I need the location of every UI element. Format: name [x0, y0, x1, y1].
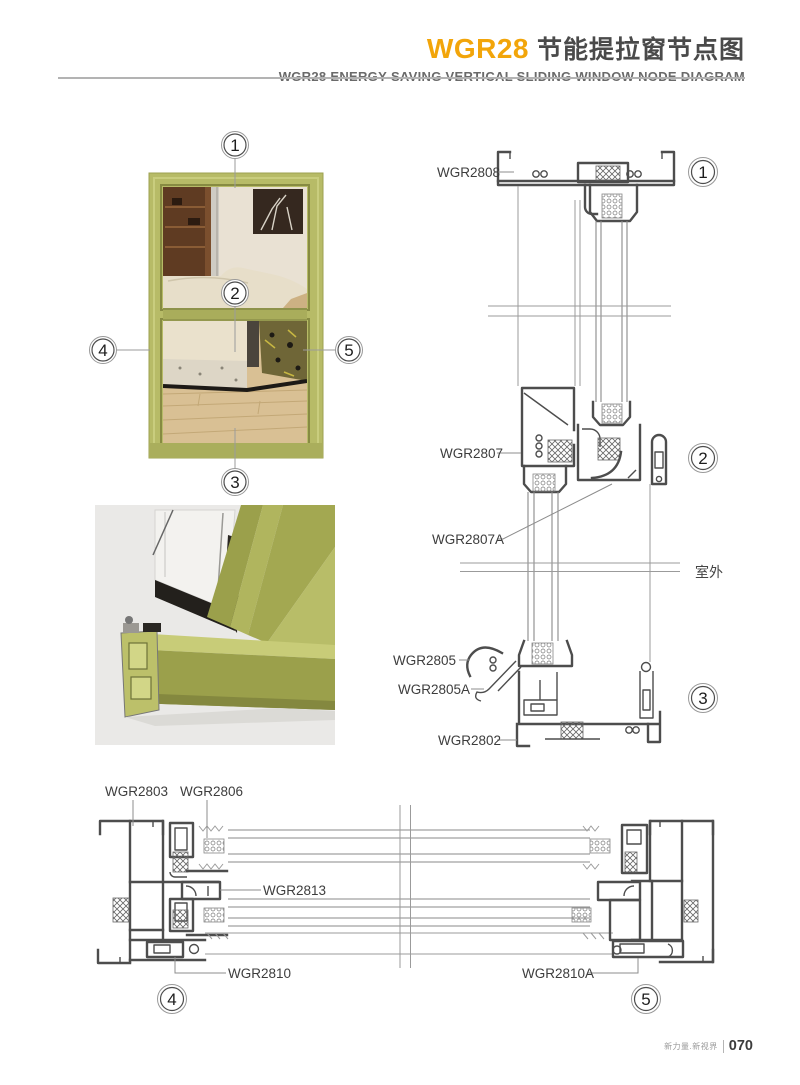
title-chinese: 节能提拉窗节点图	[537, 36, 745, 64]
sill-detail	[467, 641, 660, 746]
label-wgr2805: WGR2805	[393, 653, 456, 668]
label-wgr2810: WGR2810	[228, 966, 291, 981]
callout-1: 1	[222, 132, 249, 159]
callout-3-number: 3	[230, 473, 239, 492]
catalog-page: WGR28节能提拉窗节点图 WGR28 ENERGY-SAVING VERTIC…	[0, 0, 800, 1085]
footer-slogan: 新力量.新视界	[664, 1041, 718, 1052]
head-detail	[498, 152, 674, 221]
header-rule	[58, 77, 745, 79]
callout-1-number: 1	[230, 136, 239, 155]
page-title: WGR28节能提拉窗节点图	[0, 30, 745, 66]
label-wgr2802: WGR2802	[438, 733, 501, 748]
detail-circle-1: 1	[689, 158, 718, 187]
label-wgr2810a: WGR2810A	[522, 966, 594, 981]
label-wgr2807: WGR2807	[440, 446, 503, 461]
detail-1-number: 1	[698, 163, 707, 182]
callout-4: 4	[90, 337, 117, 364]
callout-4-number: 4	[98, 341, 107, 360]
label-wgr2808: WGR2808	[437, 165, 500, 180]
detail-circle-3: 3	[689, 684, 718, 713]
callout-2-number: 2	[230, 284, 239, 303]
page-number: 070	[729, 1038, 753, 1054]
detail-4-number: 4	[167, 990, 176, 1009]
title-brand: WGR28	[427, 33, 529, 64]
corner-profile-photo	[95, 505, 335, 745]
callout-5: 5	[336, 337, 363, 364]
horizontal-section-drawing: WGR2803 WGR2806 WGR2813 WGR2810 WGR2810A…	[60, 770, 770, 1030]
outdoor-label: 室外	[695, 564, 723, 580]
right-jamb-detail	[598, 821, 713, 962]
label-wgr2803: WGR2803	[105, 784, 168, 799]
detail-3-number: 3	[698, 689, 707, 708]
detail-2-number: 2	[698, 449, 707, 468]
label-wgr2805a: WGR2805A	[398, 682, 470, 697]
footer-divider	[723, 1040, 724, 1053]
label-wgr2806: WGR2806	[180, 784, 243, 799]
window-photo-figure: 1 2 3 4 5	[80, 128, 370, 504]
vertical-section-drawing: 室外 WGR2808 WGR2807	[380, 120, 800, 780]
upper-glass-lines	[488, 186, 671, 402]
detail-circle-5: 5	[632, 985, 661, 1014]
detail-5-number: 5	[641, 990, 650, 1009]
label-wgr2813: WGR2813	[263, 883, 326, 898]
callout-3: 3	[222, 469, 249, 496]
callout-5-number: 5	[344, 341, 353, 360]
page-footer: 新力量.新视界 070	[664, 1038, 753, 1054]
callout-2: 2	[222, 280, 249, 307]
lower-glass-lines	[460, 484, 680, 662]
detail-circle-2: 2	[689, 444, 718, 473]
label-wgr2807a: WGR2807A	[432, 532, 504, 547]
page-header: WGR28节能提拉窗节点图 WGR28 ENERGY-SAVING VERTIC…	[0, 30, 745, 84]
detail-circle-4: 4	[158, 985, 187, 1014]
meeting-rail-detail	[522, 388, 666, 492]
